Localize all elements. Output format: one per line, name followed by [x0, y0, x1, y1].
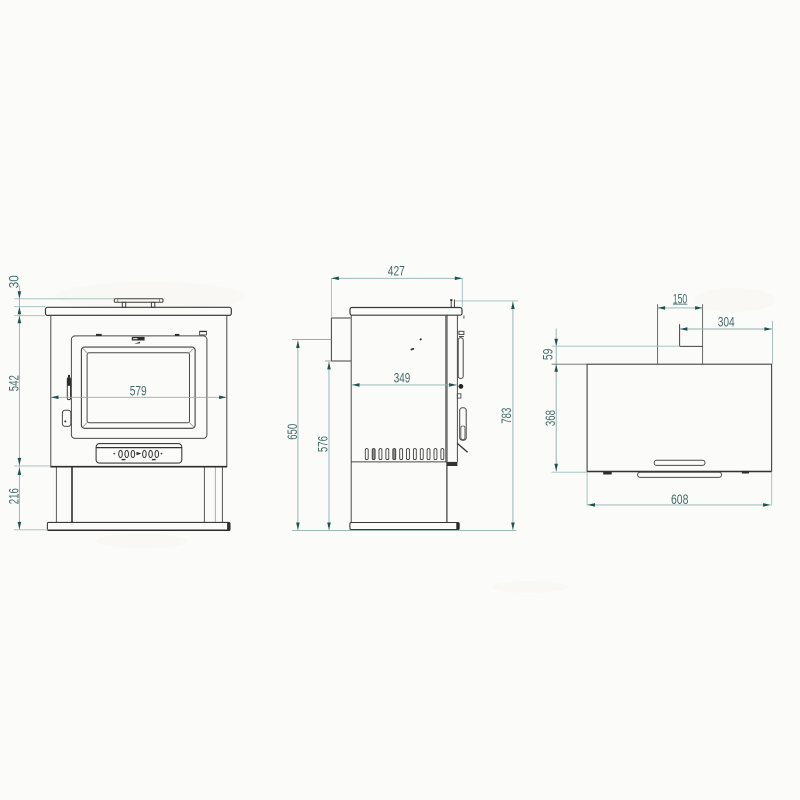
svg-text:349: 349: [394, 369, 411, 385]
svg-text:59: 59: [540, 348, 556, 360]
svg-text:30: 30: [6, 275, 22, 288]
svg-text:542: 542: [6, 375, 22, 391]
svg-text:368: 368: [542, 410, 558, 426]
svg-text:427: 427: [388, 263, 405, 279]
svg-text:650: 650: [284, 424, 300, 440]
svg-text:579: 579: [130, 382, 147, 398]
svg-text:304: 304: [718, 313, 735, 329]
svg-text:216: 216: [6, 488, 22, 504]
svg-text:576: 576: [314, 436, 330, 452]
svg-text:783: 783: [498, 408, 514, 424]
svg-text:608: 608: [671, 491, 689, 507]
